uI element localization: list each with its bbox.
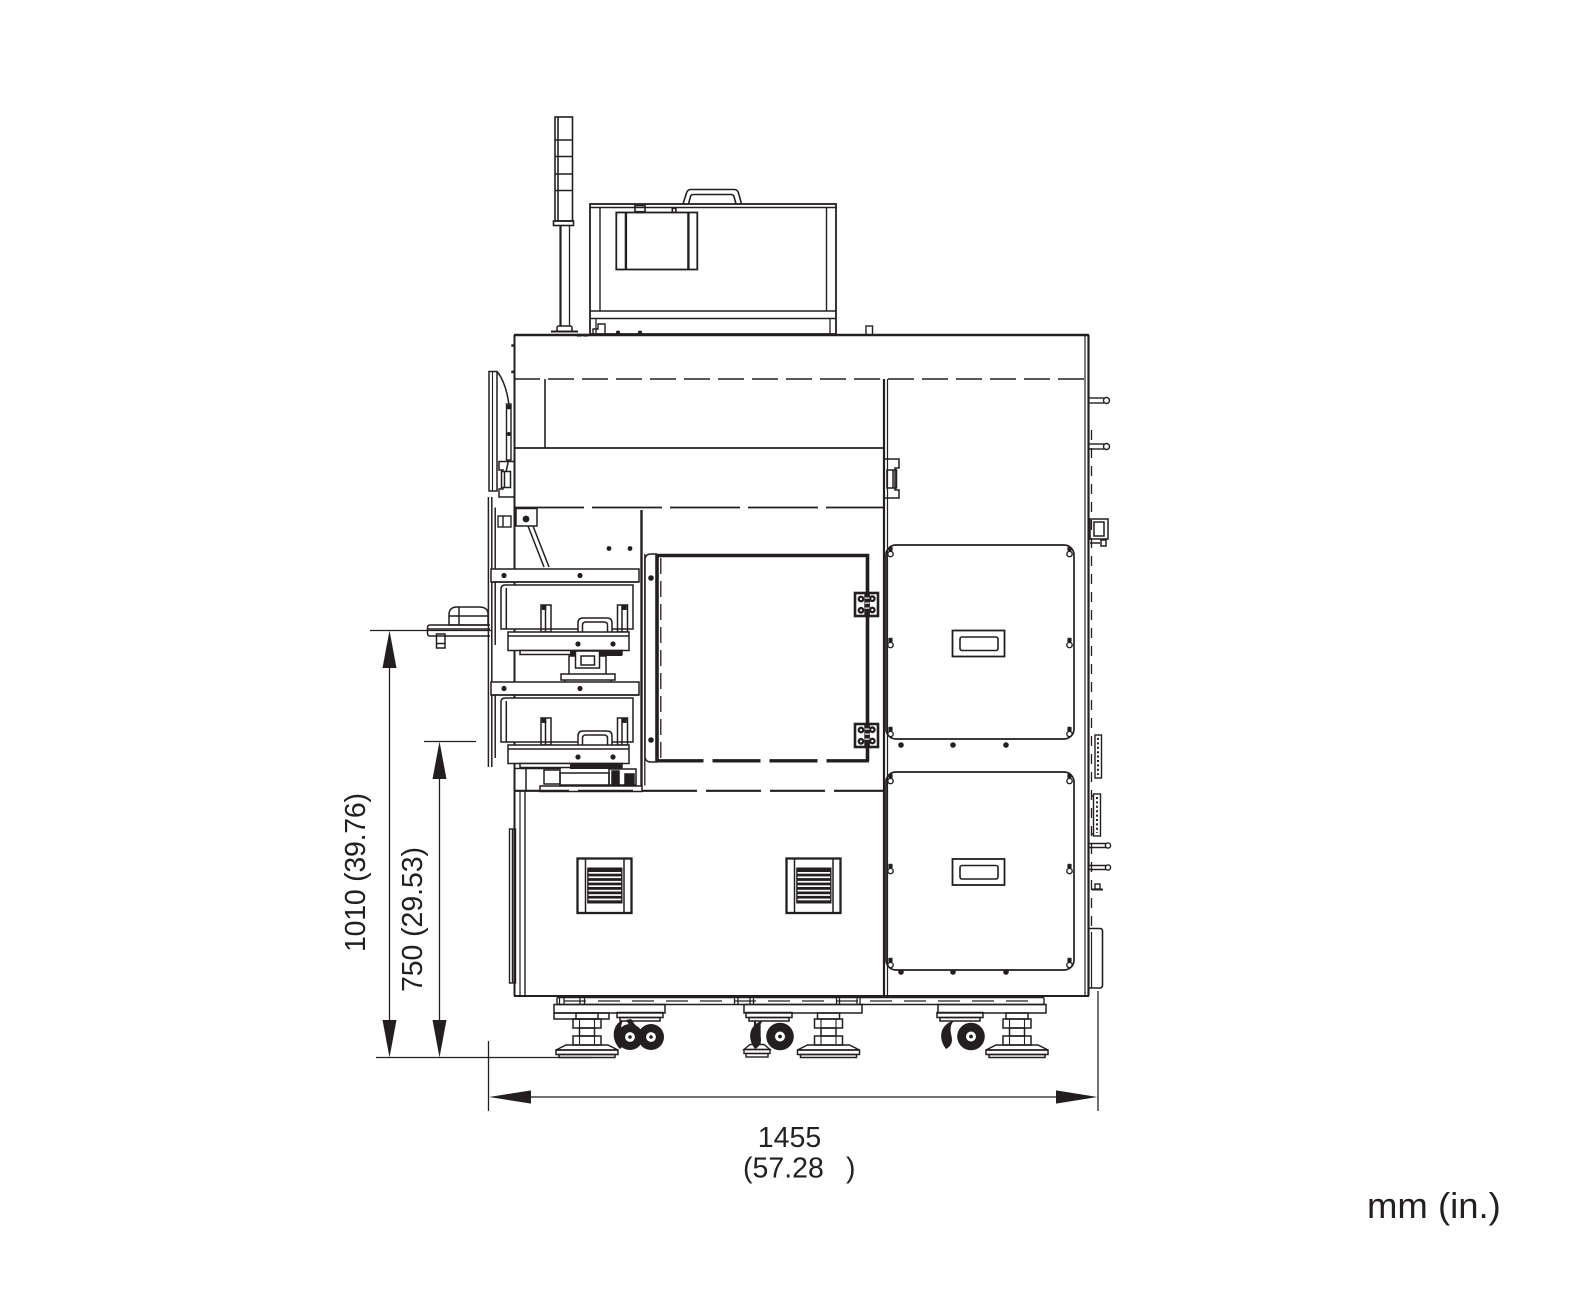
svg-text:(57.28 ): (57.28 ) <box>743 1153 855 1185</box>
svg-text:1010 (39.76): 1010 (39.76) <box>340 793 372 952</box>
svg-text:750 (29.53): 750 (29.53) <box>397 847 429 992</box>
svg-text:1455: 1455 <box>758 1122 821 1154</box>
svg-text:mm (in.): mm (in.) <box>1367 1185 1501 1226</box>
